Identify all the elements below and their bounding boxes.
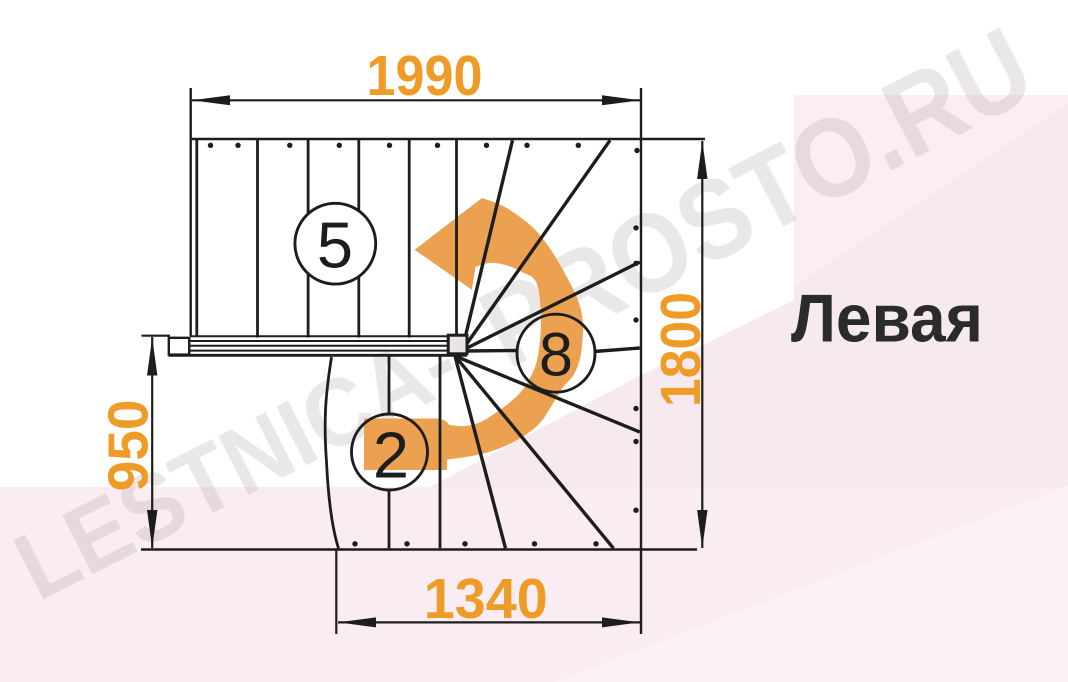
svg-text:Левая: Левая (791, 281, 983, 357)
svg-text:8: 8 (539, 320, 573, 388)
svg-text:1800: 1800 (649, 292, 713, 407)
svg-text:5: 5 (317, 208, 353, 281)
svg-text:1990: 1990 (367, 44, 483, 108)
svg-text:950: 950 (97, 399, 161, 491)
svg-text:2: 2 (373, 419, 409, 492)
svg-text:1340: 1340 (424, 567, 548, 631)
